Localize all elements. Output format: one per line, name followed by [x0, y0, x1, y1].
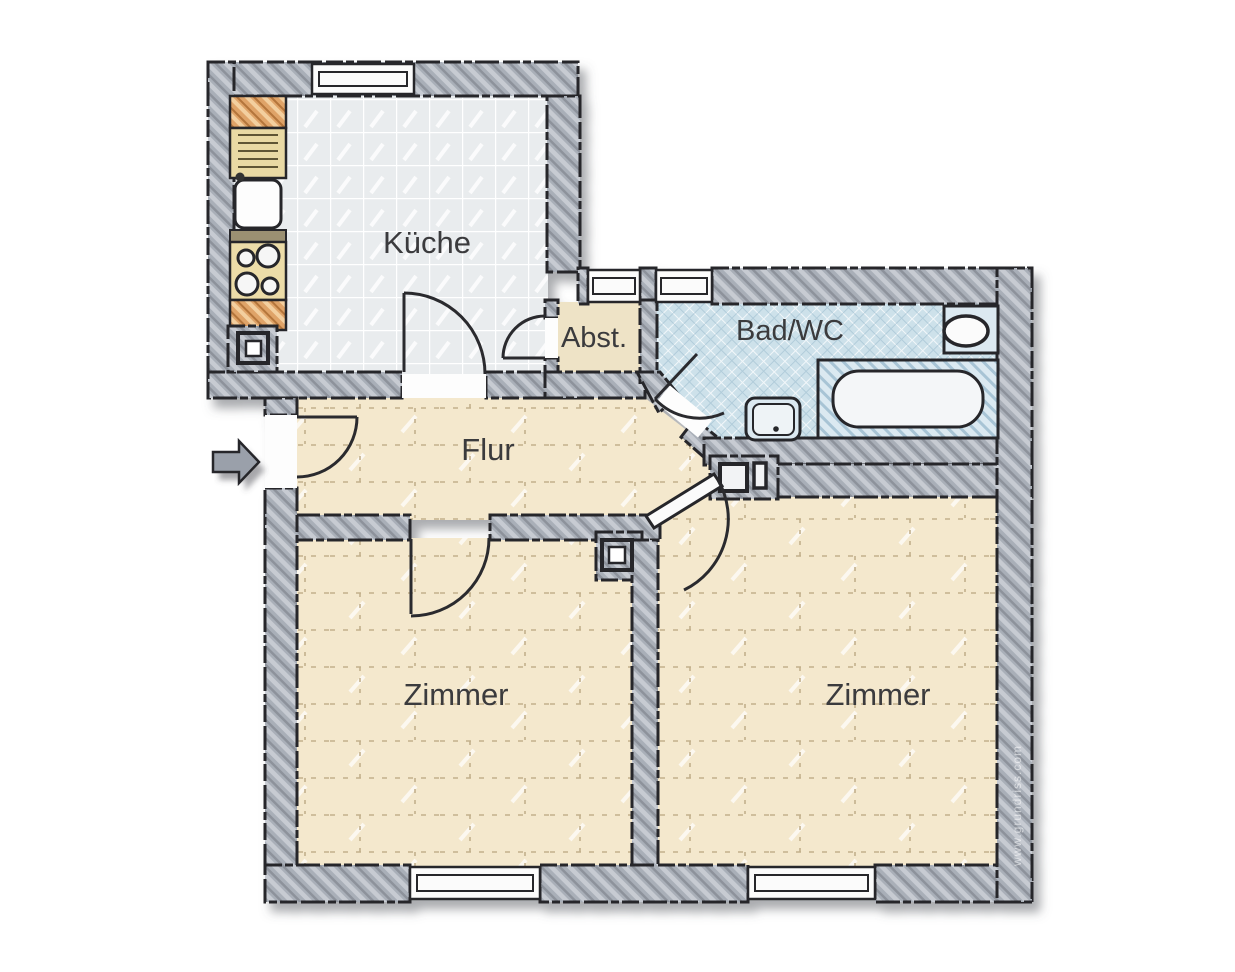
burner-small-1 — [238, 250, 254, 266]
kitchen-counter — [230, 96, 286, 330]
apartment-plan: Küche Abst. Bad/WC Flur Zimmer Zimmer — [208, 62, 1032, 902]
storage-door-opening — [545, 318, 558, 358]
label-kitchen: Küche — [383, 225, 471, 260]
wall-kitchen-right — [547, 96, 580, 272]
wall-storage-left-top — [545, 300, 558, 318]
burner-large-1 — [257, 245, 279, 267]
sink-tap-icon — [236, 173, 245, 182]
bathtub-basin — [833, 371, 983, 427]
label-bathroom: Bad/WC — [736, 315, 844, 347]
label-room-right: Zimmer — [825, 677, 930, 712]
floor-plan-drawing: Küche Abst. Bad/WC Flur Zimmer Zimmer ww… — [0, 0, 1235, 972]
label-storage: Abst. — [561, 322, 627, 354]
window-bathroom — [656, 270, 712, 302]
worktop-top — [230, 96, 286, 128]
wall-bottom-segment-2 — [540, 865, 748, 902]
burner-small-2 — [262, 278, 278, 294]
wall-kitchen-bottom-left — [208, 372, 402, 398]
floor-room-right — [650, 482, 1000, 868]
label-room-left: Zimmer — [403, 677, 508, 712]
shaft-kitchen — [228, 326, 277, 372]
washbasin — [746, 398, 800, 440]
label-hallway: Flur — [461, 432, 514, 467]
bathtub — [818, 360, 998, 438]
wall-top-segment-3 — [712, 268, 1032, 304]
counter-divider — [230, 230, 286, 242]
window-room-left — [410, 867, 540, 899]
wall-top-segment-1 — [578, 268, 588, 304]
wall-between-rooms — [632, 540, 658, 870]
wall-bottom-segment-1 — [265, 865, 410, 902]
watermark-text: www.grundriss.com — [1010, 745, 1024, 867]
window-kitchen — [312, 64, 414, 94]
entrance-door-opening — [265, 415, 297, 488]
wall-storage-bottom — [545, 372, 645, 398]
burner-large-2 — [236, 273, 258, 295]
wall-room-right-top — [775, 464, 1032, 497]
window-room-right — [748, 867, 875, 899]
window-storage — [588, 270, 640, 302]
toilet-bowl — [944, 316, 988, 346]
kitchen-door-opening — [402, 374, 486, 398]
wall-left-upper — [265, 398, 297, 415]
washbasin-tap-icon — [773, 426, 779, 432]
toilet — [944, 306, 998, 353]
floor-plan-page: Küche Abst. Bad/WC Flur Zimmer Zimmer ww… — [0, 0, 1235, 972]
wall-left-lower — [265, 488, 297, 868]
shaft-room-right-symbol — [720, 463, 766, 491]
entrance-arrow — [213, 441, 265, 491]
sink — [235, 180, 281, 228]
